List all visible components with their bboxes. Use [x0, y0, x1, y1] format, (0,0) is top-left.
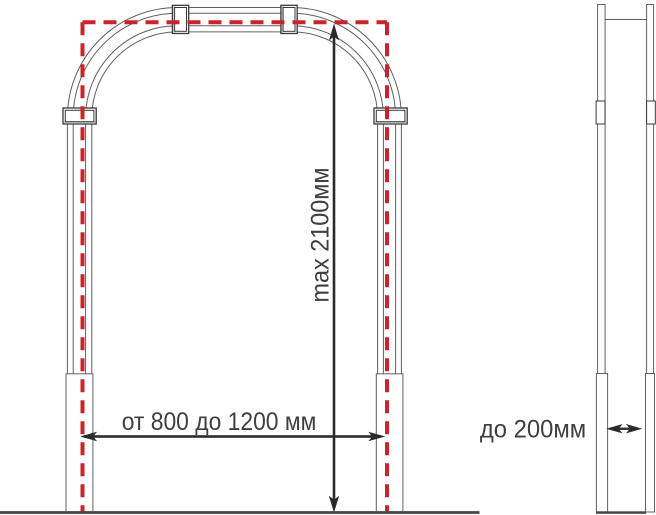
svg-text:от 800 до 1200 мм: от 800 до 1200 мм: [122, 408, 317, 436]
svg-text:max 2100мм: max 2100мм: [307, 168, 335, 303]
svg-text:до 200мм: до 200мм: [480, 416, 586, 444]
